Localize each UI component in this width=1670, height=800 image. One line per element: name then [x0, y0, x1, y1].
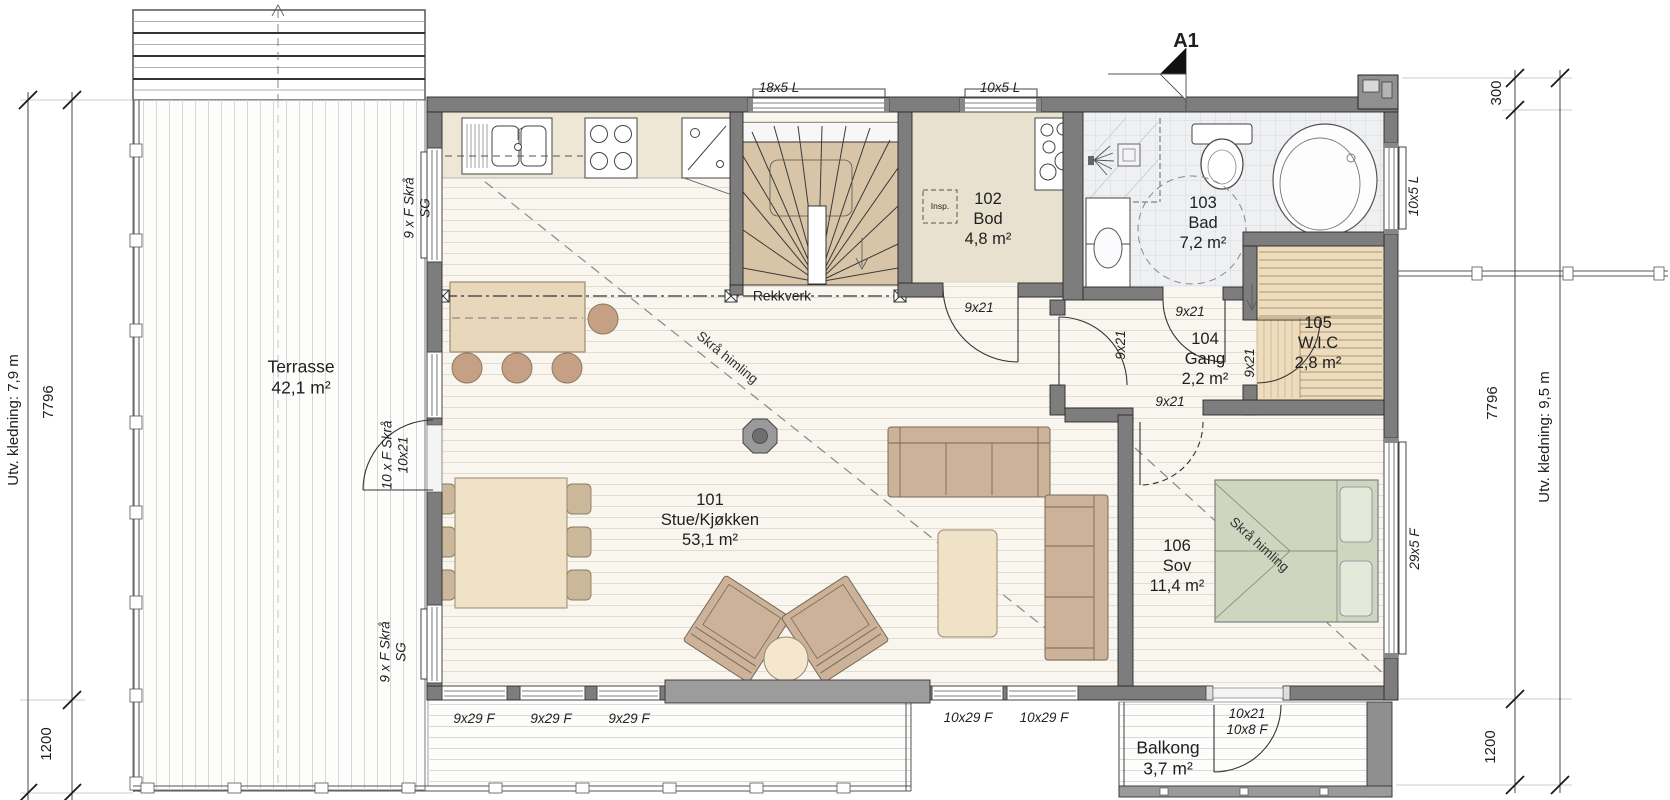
window-label-east-sov: 29x5 F [1407, 528, 1423, 569]
room-label-wic: 105 W.I.C 2,8 m² [1295, 313, 1342, 373]
window-label-south-2: 9x29 F [530, 711, 571, 727]
room-label-bod: 102 Bod 4,8 m² [965, 189, 1012, 249]
window-label-south-1: 9x29 F [453, 711, 494, 727]
door-label-terrasse: 10 x F Skrå 10x21 [380, 421, 413, 490]
window-label-south-3: 9x29 F [608, 711, 649, 727]
section-label-a1: A1 [1173, 29, 1199, 53]
dim-label-left-height: 7796 [40, 385, 58, 418]
stairs [743, 123, 898, 285]
washbasin [1086, 198, 1130, 290]
dim-label-right-deck: 1200 [1482, 730, 1500, 763]
sofa-large [888, 427, 1050, 497]
south-deck [428, 700, 911, 791]
window-label-west-lower: 9 x F Skrå SG [378, 621, 411, 682]
wood-stove [743, 419, 777, 453]
window-label-north-bod: 10x5 L [980, 80, 1021, 96]
east-fence-line [1398, 267, 1668, 280]
coffee-table [938, 530, 997, 637]
door-label-balkong-size: 10x21 [1229, 706, 1266, 722]
dishwasher [682, 118, 732, 178]
dim-label-left-deck: 1200 [38, 727, 56, 760]
floor-plan-drawing [0, 0, 1670, 800]
door-label-stue-gang: 9x21 [1113, 330, 1129, 359]
door-label-balkong-window: 10x8 F [1226, 722, 1267, 738]
door-label-bod: 9x21 [964, 300, 993, 316]
side-table [764, 637, 808, 681]
dining-table-group [431, 478, 591, 608]
sideboard [450, 282, 585, 352]
door-label-bad: 9x21 [1175, 304, 1204, 320]
window-label-north-stair: 18x5 L [759, 80, 800, 96]
room-label-terrasse: Terrasse 42,1 m² [267, 357, 334, 400]
chimney [1358, 75, 1398, 109]
window-label-south-4: 10x29 F [944, 710, 993, 726]
dim-label-left-outer: Utv. kledning: 7,9 m [5, 354, 23, 485]
window-label-west-upper: 9 x F Skrå SG [402, 177, 435, 238]
dim-label-right-outer: Utv. kledning: 9,5 m [1536, 371, 1554, 502]
insp-label: Insp. [931, 201, 949, 211]
rekkverk-label: Rekkverk [753, 287, 811, 304]
door-label-sov: 9x21 [1155, 394, 1184, 410]
dim-label-right-height: 7796 [1484, 386, 1502, 419]
room-label-gang: 104 Gang 2,2 m² [1182, 329, 1229, 389]
room-label-stue: 101 Stue/Kjøkken 53,1 m² [661, 490, 759, 550]
window-label-east-bad: 10x5 L [1406, 176, 1422, 217]
floor-plan: A1 Terrasse 42,1 m² 101 Stue/Kjøkken 53,… [0, 0, 1670, 800]
double-bed [1215, 480, 1378, 622]
room-label-balkong: Balkong 3,7 m² [1136, 738, 1199, 781]
room-label-sov: 106 Sov 11,4 m² [1150, 536, 1205, 596]
door-label-wic: 9x21 [1242, 348, 1258, 377]
cooktop [585, 118, 637, 178]
outdoor-stair [133, 5, 425, 100]
dim-label-right-offset: 300 [1488, 80, 1506, 105]
dining-table [455, 478, 567, 608]
bathtub [1273, 124, 1377, 236]
window-label-south-5: 10x29 F [1020, 710, 1069, 726]
kitchen-sink [462, 118, 552, 174]
sofa-small [1045, 495, 1108, 660]
room-label-bad: 103 Bad 7,2 m² [1180, 193, 1227, 253]
